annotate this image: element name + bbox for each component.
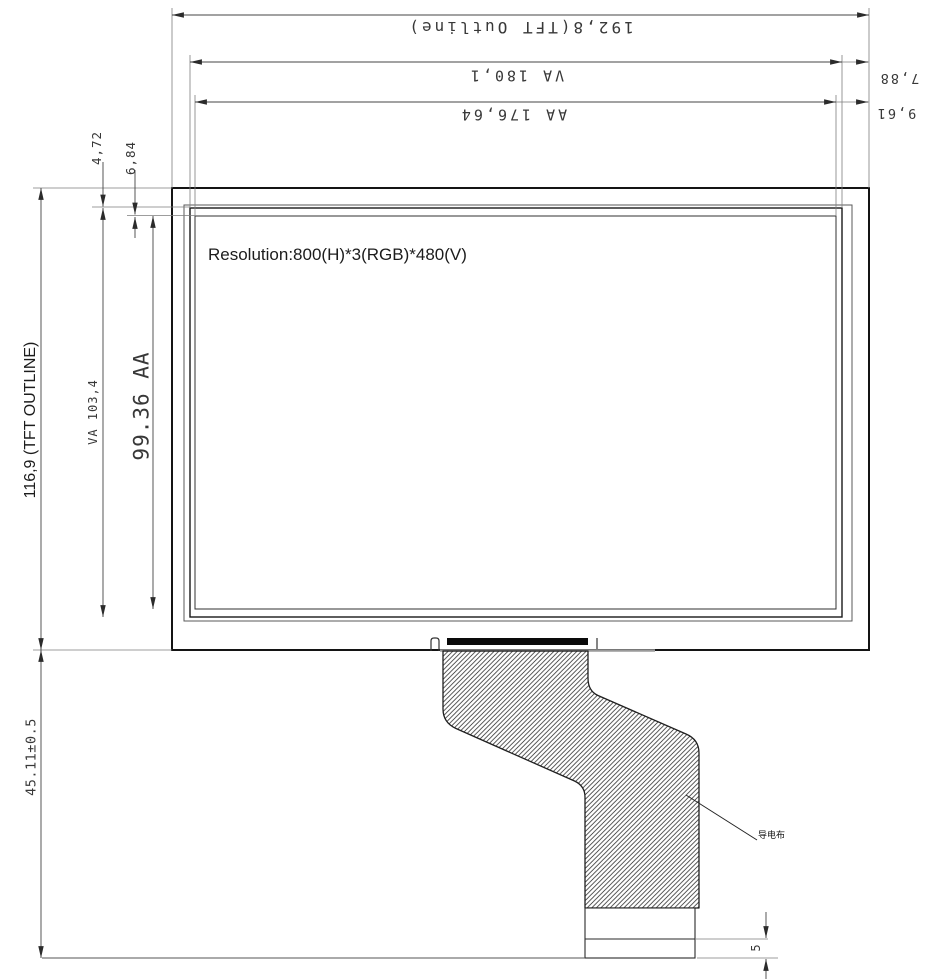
dim-stiffener-height-label: 5 (750, 944, 762, 951)
dim-aa-top-offset-label: 6,84 (125, 141, 138, 175)
fpc-cable-shape (443, 651, 699, 908)
fpc-leader-label: 导电布 (758, 832, 785, 841)
aa-rect (195, 216, 836, 609)
dim-aa-right-offset-label: 9,61 (876, 105, 917, 119)
dim-tft-outline-height-label: 116,9 (TFT OUTLINE) (23, 342, 39, 499)
extension-lines (33, 8, 869, 958)
dim-tft-outline-width-label: 192,8(TFT Outline) (406, 19, 633, 35)
dim-va-top-offset-label: 4,72 (91, 131, 104, 165)
dimension-lines (41, 15, 869, 979)
dim-va-height-label: VA 103,4 (87, 379, 99, 445)
va-rect (190, 208, 842, 617)
dim-fpc-length-label: 45.11±0.5 (25, 718, 39, 796)
technical-drawing-svg (0, 0, 939, 979)
dim-aa-width-label: AA 176,64 (459, 107, 567, 122)
resolution-label: Resolution:800(H)*3(RGB)*480(V) (208, 246, 467, 263)
fpc-stiffener (585, 908, 695, 958)
dim-aa-height-label: 99.36 AA (132, 351, 153, 460)
tft-outline-drawing: 192,8(TFT Outline) VA 180,1 AA 176,64 7,… (0, 0, 939, 979)
panel-inner-rect (184, 205, 852, 621)
dim-va-width-label: VA 180,1 (468, 68, 564, 83)
dim-va-right-offset-label: 7,88 (879, 70, 920, 84)
